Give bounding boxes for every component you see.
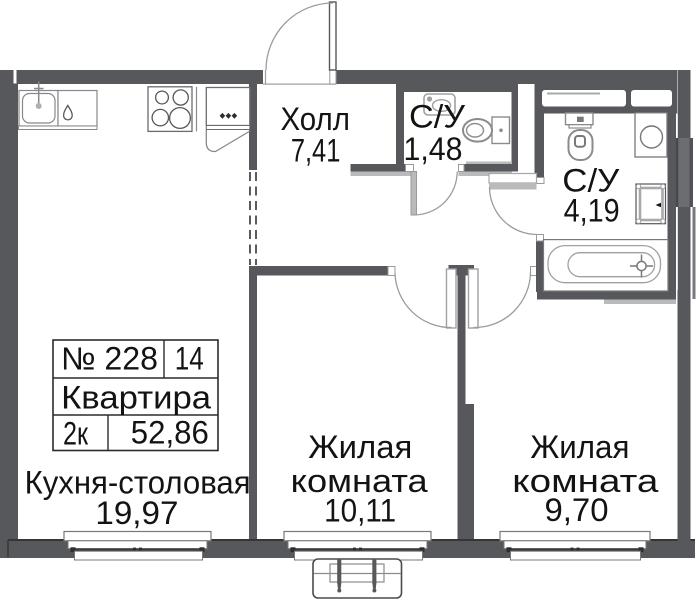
svg-text:2к: 2к bbox=[63, 416, 89, 452]
svg-text:Жилая: Жилая bbox=[308, 429, 412, 465]
svg-text:С/У: С/У bbox=[409, 99, 466, 135]
svg-text:9,70: 9,70 bbox=[545, 492, 609, 528]
svg-text:19,97: 19,97 bbox=[95, 495, 178, 531]
svg-text:52,86: 52,86 bbox=[131, 415, 209, 451]
svg-text:14: 14 bbox=[175, 341, 204, 377]
svg-text:1,48: 1,48 bbox=[404, 131, 463, 167]
svg-text:Квартира: Квартира bbox=[61, 380, 211, 416]
svg-text:№ 228: № 228 bbox=[61, 341, 158, 377]
svg-text:7,41: 7,41 bbox=[291, 133, 341, 169]
svg-text:Жилая: Жилая bbox=[530, 429, 629, 465]
svg-text:4,19: 4,19 bbox=[564, 192, 620, 228]
svg-text:10,11: 10,11 bbox=[324, 493, 396, 529]
